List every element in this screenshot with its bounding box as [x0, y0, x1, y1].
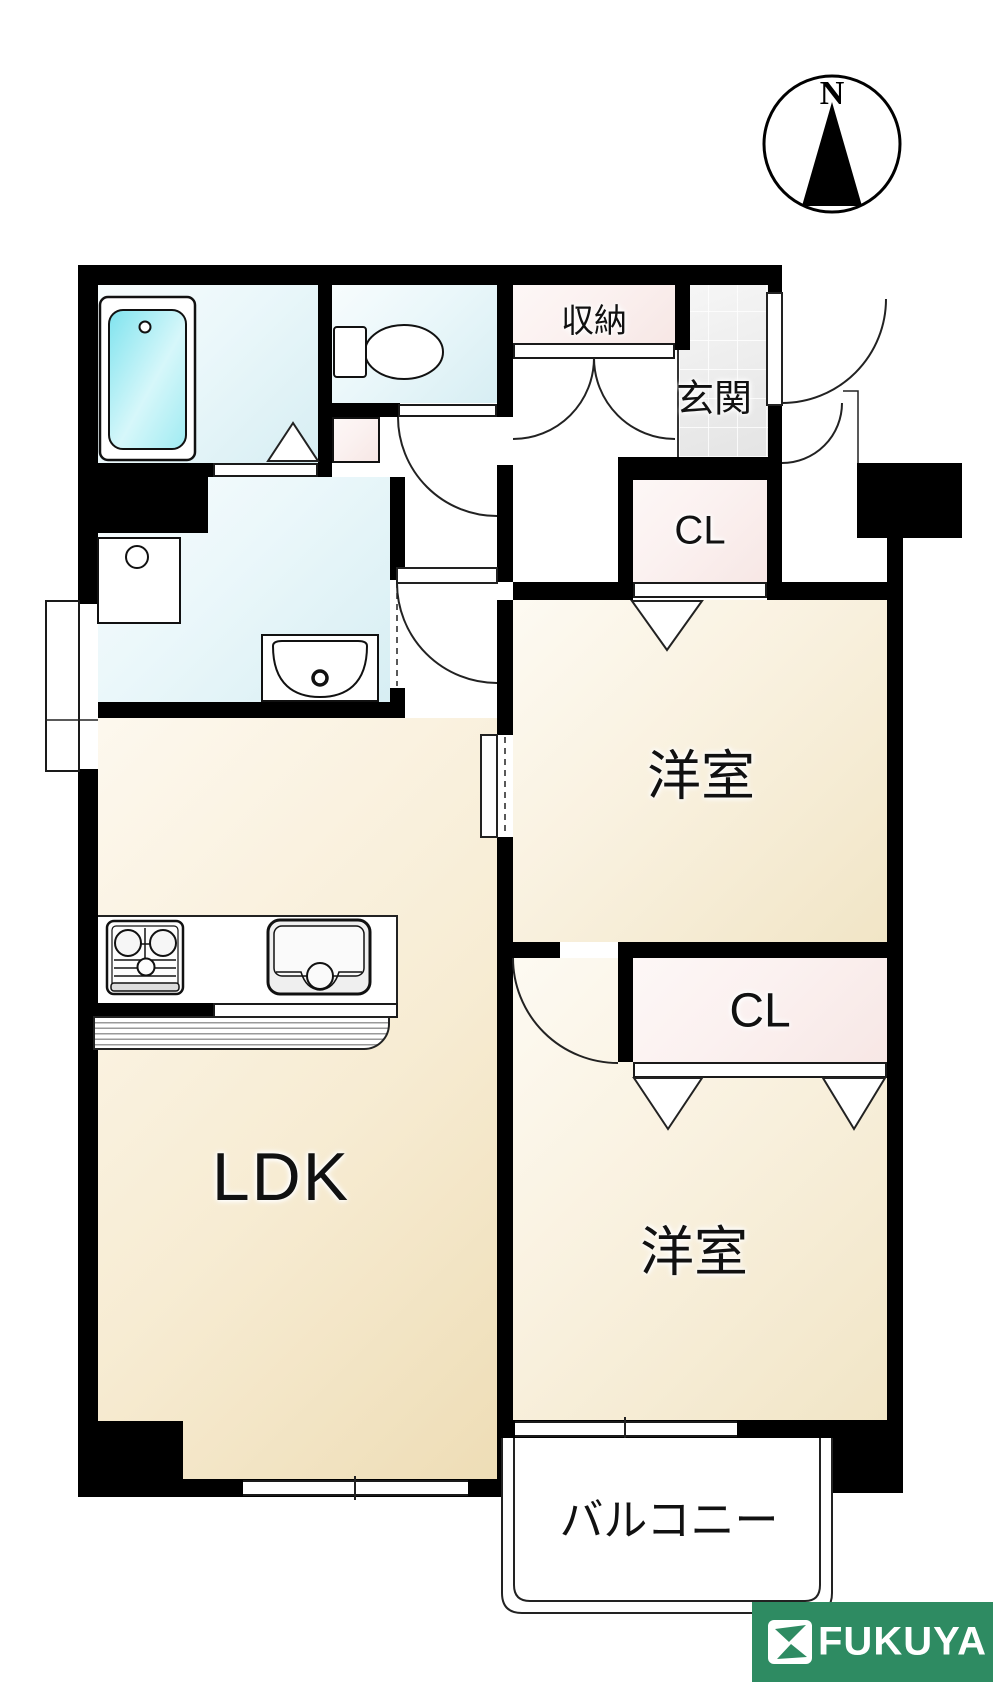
toilet-door-arc: [398, 417, 497, 516]
storage-door-arc-left: [513, 358, 594, 439]
kitchen-sink: [268, 920, 370, 994]
washbasin: [262, 635, 378, 701]
north-label: N: [820, 75, 845, 112]
closet-upper-folding-door: [632, 601, 702, 650]
ldk-entry-door-leaf: [397, 568, 497, 583]
plan-vector-overlay: N: [0, 0, 1000, 1686]
bathroom-folding-door: [268, 423, 318, 461]
bedroom-upper-sliding-leaf: [481, 735, 497, 837]
storage-door-arc-right: [594, 358, 675, 439]
ldk-label: LDK: [212, 1138, 350, 1216]
entrance-door-arc-child: [782, 403, 842, 463]
fukuya-logo-icon: [768, 1620, 812, 1664]
closet-upper-label: CL: [674, 509, 725, 554]
ldk-entry-door-arc: [397, 583, 497, 683]
closet-lower-folding-door-left: [634, 1078, 702, 1129]
closet-lower-label: CL: [729, 984, 790, 1039]
fukuya-logo: FUKUYA: [752, 1602, 993, 1682]
washing-machine-pan: [98, 538, 180, 623]
stove-icon: [107, 921, 183, 994]
entrance-door-arc-main: [782, 299, 886, 403]
closet-lower-folding-door-right: [823, 1078, 885, 1129]
entrance-door-stop-line: [843, 391, 858, 463]
balcony-label: バルコニー: [559, 1484, 778, 1548]
bathtub: [100, 297, 195, 460]
entrance-door-leaf: [767, 293, 782, 405]
storage-label: 収納: [561, 294, 627, 342]
bedroom-lower-door-arc: [513, 958, 618, 1063]
toilet-icon: [334, 325, 443, 379]
fukuya-logo-text: FUKUYA: [818, 1620, 987, 1665]
floor-plan: N: [0, 0, 1000, 1686]
bedroom-lower-label: 洋室: [640, 1208, 748, 1287]
bedroom-upper-label: 洋室: [647, 732, 755, 811]
entrance-label: 玄関: [676, 368, 752, 423]
north-compass-icon: N: [764, 75, 900, 212]
